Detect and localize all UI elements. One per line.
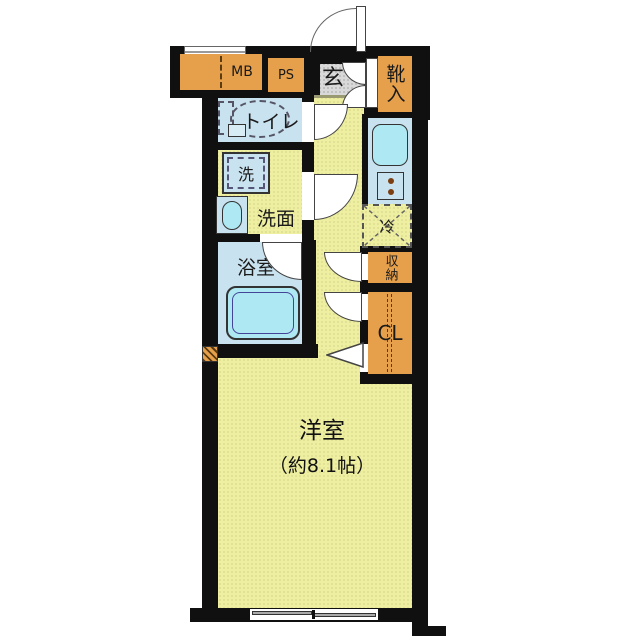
wall-storage-cl bbox=[360, 283, 414, 292]
storage-box: 収納 bbox=[368, 252, 412, 283]
kitchen-sink bbox=[372, 124, 408, 166]
entrance-door-leaf bbox=[356, 6, 366, 52]
balcony-edge-horizontal bbox=[412, 626, 446, 636]
shoe-cabinet-label: 靴入 bbox=[382, 64, 409, 104]
entrance-door-arc bbox=[310, 8, 356, 52]
stove-burner-1 bbox=[388, 178, 394, 184]
bathroom-doorway bbox=[260, 234, 302, 242]
window-pane-right bbox=[314, 613, 376, 617]
mb-box: MB bbox=[180, 54, 262, 90]
washbasin bbox=[216, 196, 248, 234]
shoe-cabinet-doors bbox=[366, 58, 378, 108]
wall-meter-icon bbox=[202, 346, 218, 362]
washroom-label: 洗面 bbox=[248, 202, 304, 232]
storage-label: 収納 bbox=[381, 254, 400, 282]
refrigerator-space: 冷 bbox=[362, 204, 412, 248]
stove-burner-2 bbox=[388, 189, 394, 195]
floor-plan: MB PS 玄 靴入 トイレ 洗 洗面 浴室 bbox=[0, 0, 640, 640]
wall-bath-right bbox=[302, 240, 316, 352]
wall-toilet-washroom bbox=[216, 142, 304, 150]
bathtub bbox=[226, 286, 300, 340]
main-room-title: 洋室 （約8.1帖） bbox=[242, 404, 402, 484]
refrigerator-label: 冷 bbox=[364, 206, 410, 246]
room-name: 洋室 bbox=[299, 411, 345, 445]
toilet-label: トイレ bbox=[238, 104, 304, 136]
room-size: （約8.1帖） bbox=[269, 451, 375, 478]
washing-machine: 洗 bbox=[222, 152, 270, 194]
ps-box: PS bbox=[268, 58, 304, 92]
mb-label: MB bbox=[222, 54, 262, 90]
wall-right bbox=[412, 46, 428, 622]
closet-label: CL bbox=[368, 314, 412, 352]
stove bbox=[377, 172, 404, 200]
wall-bath-bottom bbox=[202, 344, 318, 358]
washroom-doorway bbox=[302, 172, 314, 220]
washbasin-bowl bbox=[222, 201, 242, 230]
washer-label: 洗 bbox=[224, 154, 268, 192]
toilet-doorway bbox=[302, 102, 314, 142]
shoe-cabinet-box: 靴入 bbox=[378, 56, 412, 112]
window-center-tick bbox=[312, 610, 315, 619]
closet-box: CL bbox=[368, 292, 412, 374]
window-pane-left bbox=[252, 611, 312, 615]
closet-folding-door bbox=[326, 342, 364, 368]
